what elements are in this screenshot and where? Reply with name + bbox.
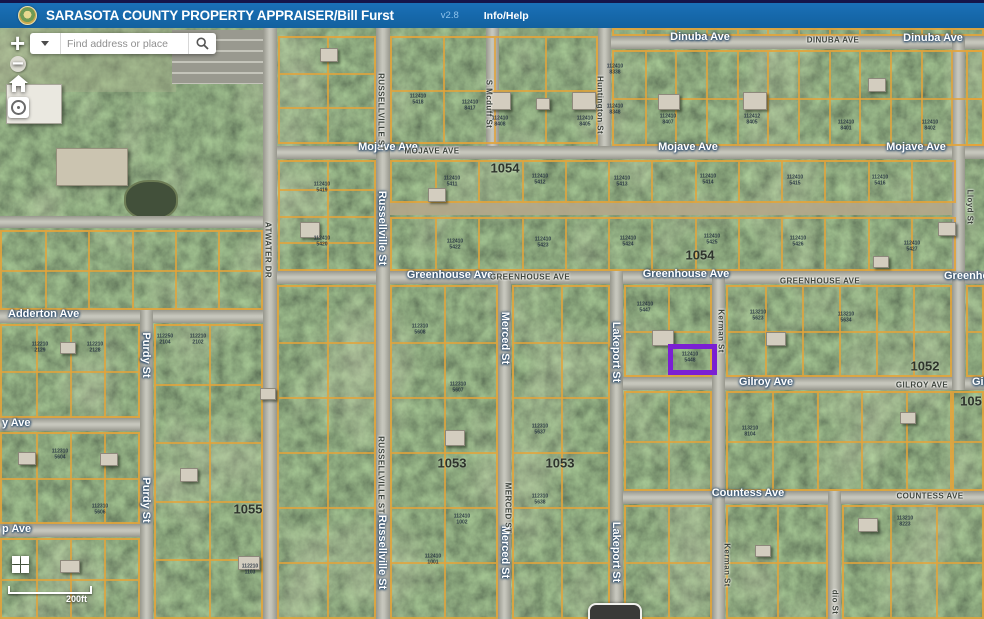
- road-lakeport-st: [610, 271, 623, 619]
- road-kerman-st: [712, 271, 725, 619]
- home-extent-button[interactable]: [9, 75, 28, 97]
- home-icon: [9, 75, 28, 92]
- road-campus-road: [0, 216, 268, 228]
- locate-button[interactable]: [8, 97, 29, 118]
- search-input[interactable]: [61, 33, 188, 54]
- road-lloyd-st: [952, 36, 965, 390]
- selected-parcel-highlight[interactable]: [668, 344, 717, 375]
- road-dirt-lane: [388, 203, 958, 215]
- search-icon: [196, 37, 209, 50]
- chevron-down-icon: [41, 41, 49, 46]
- version-label: v2.8: [441, 10, 459, 21]
- browser-top-strip: [0, 0, 984, 3]
- map-marker-callout[interactable]: [588, 603, 642, 619]
- road-adderton-ave: [0, 310, 272, 323]
- road-purdy-st: [140, 310, 153, 619]
- campus-building: [56, 148, 128, 186]
- road-atwater-dr: [263, 28, 277, 619]
- locate-crosshair-icon: [11, 100, 26, 115]
- road-merced-st: [498, 271, 511, 619]
- road-dinuba-ave: [600, 36, 984, 49]
- app-window: SARASOTA COUNTY PROPERTY APPRAISER/Bill …: [0, 0, 984, 619]
- app-title: SARASOTA COUNTY PROPERTY APPRAISER/Bill …: [46, 8, 394, 23]
- road-s-mcduff-st: [486, 28, 499, 146]
- info-help-link[interactable]: Info/Help: [484, 10, 529, 22]
- map-canvas[interactable]: + − 200ft Dinuba: [0, 28, 984, 619]
- search-button[interactable]: [188, 33, 216, 54]
- road-countess-ave: [614, 491, 984, 504]
- road-p-ave: [0, 524, 152, 537]
- road-dio-st: [828, 491, 841, 619]
- county-seal-logo: [18, 6, 37, 25]
- search-bar: [30, 33, 216, 54]
- road-y-ave: [0, 418, 152, 431]
- pond: [124, 180, 178, 220]
- road-russellville-st: [376, 28, 390, 619]
- search-source-dropdown[interactable]: [30, 33, 61, 54]
- road-gilroy-ave: [614, 377, 984, 390]
- basemap-gallery-icon[interactable]: [12, 556, 29, 573]
- road-huntington-st: [598, 28, 611, 146]
- zoom-out-button[interactable]: −: [12, 54, 24, 74]
- app-header: SARASOTA COUNTY PROPERTY APPRAISER/Bill …: [0, 3, 984, 28]
